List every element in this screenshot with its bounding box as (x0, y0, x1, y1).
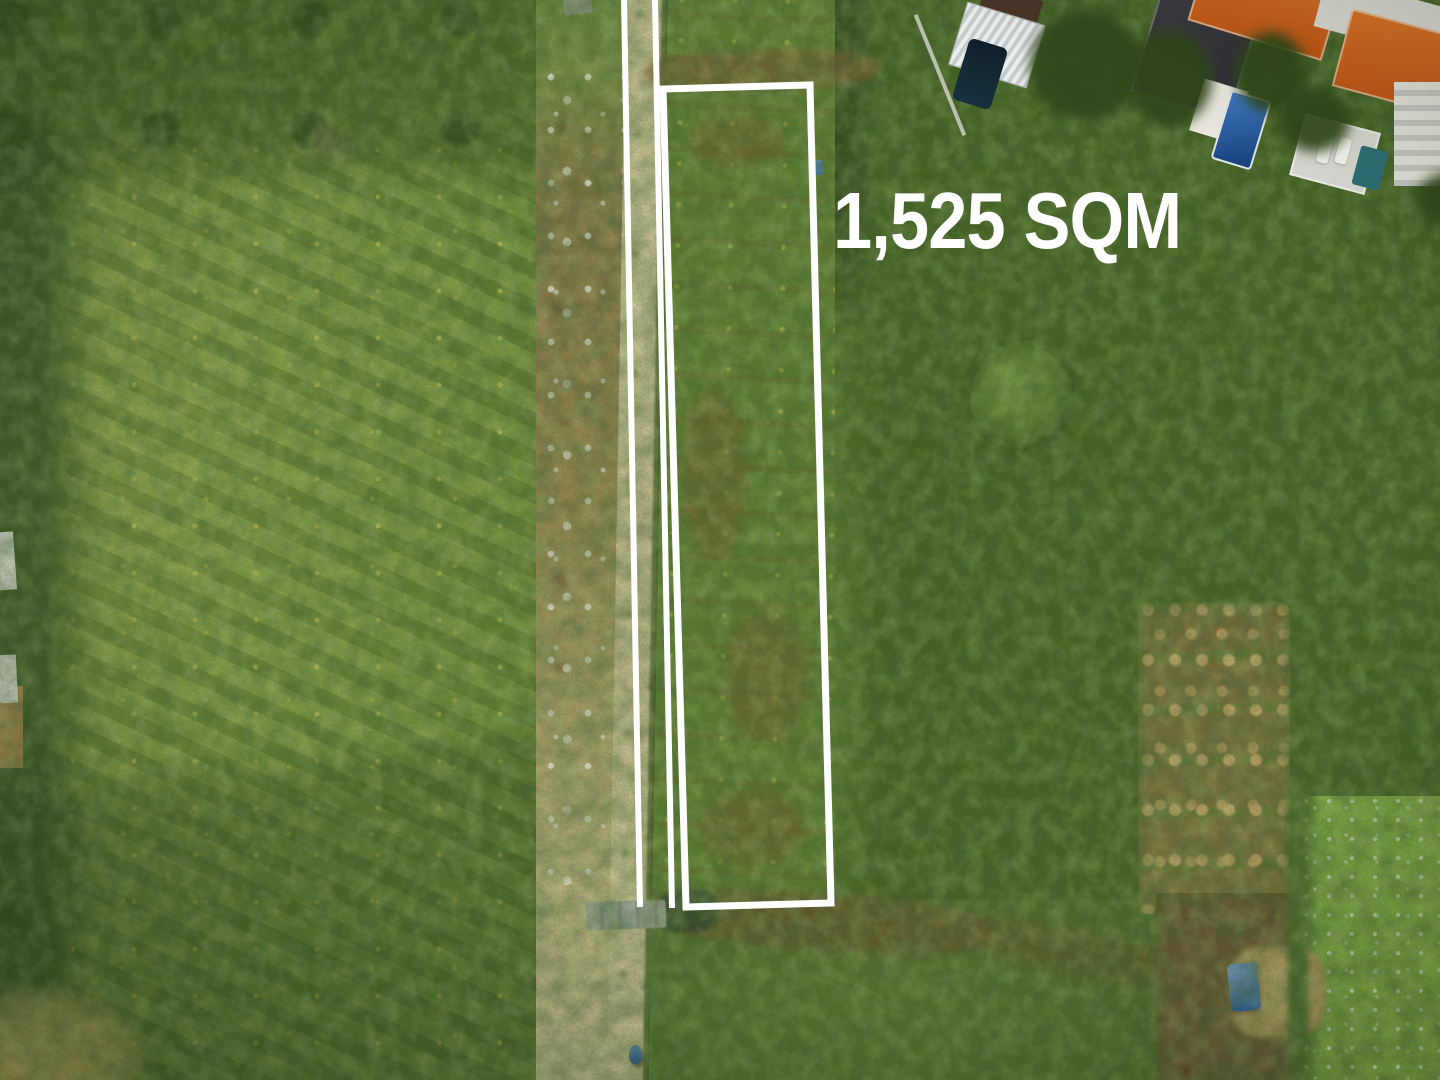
green-rice-paddy (1300, 796, 1440, 1080)
soil-patch (682, 390, 746, 560)
field-shadow-band (0, 118, 565, 180)
dry-grass-patch (0, 985, 145, 1080)
garden-trees (1126, 30, 1212, 126)
aerial-drone-photo: 1,525 SQM (0, 0, 1440, 1080)
white-building-right-edge (1394, 82, 1440, 186)
dark-bush-wall (660, 890, 718, 932)
paddy-divider-hedge (1288, 786, 1308, 1080)
area-label: 1,525 SQM (833, 181, 1181, 261)
garden-trees (1030, 10, 1140, 120)
concrete-bridge-slab (586, 900, 667, 931)
person-on-path (629, 1045, 642, 1064)
soil-patch (700, 790, 805, 865)
white-roof-left-edge (0, 654, 18, 703)
soil-patch (690, 115, 785, 167)
blue-tarp (1227, 962, 1262, 1013)
blue-survey-marker (812, 160, 823, 175)
soil-patch (726, 610, 808, 740)
garden-trees (1280, 88, 1350, 152)
harvested-paddy-with-haystacks (1138, 602, 1290, 914)
